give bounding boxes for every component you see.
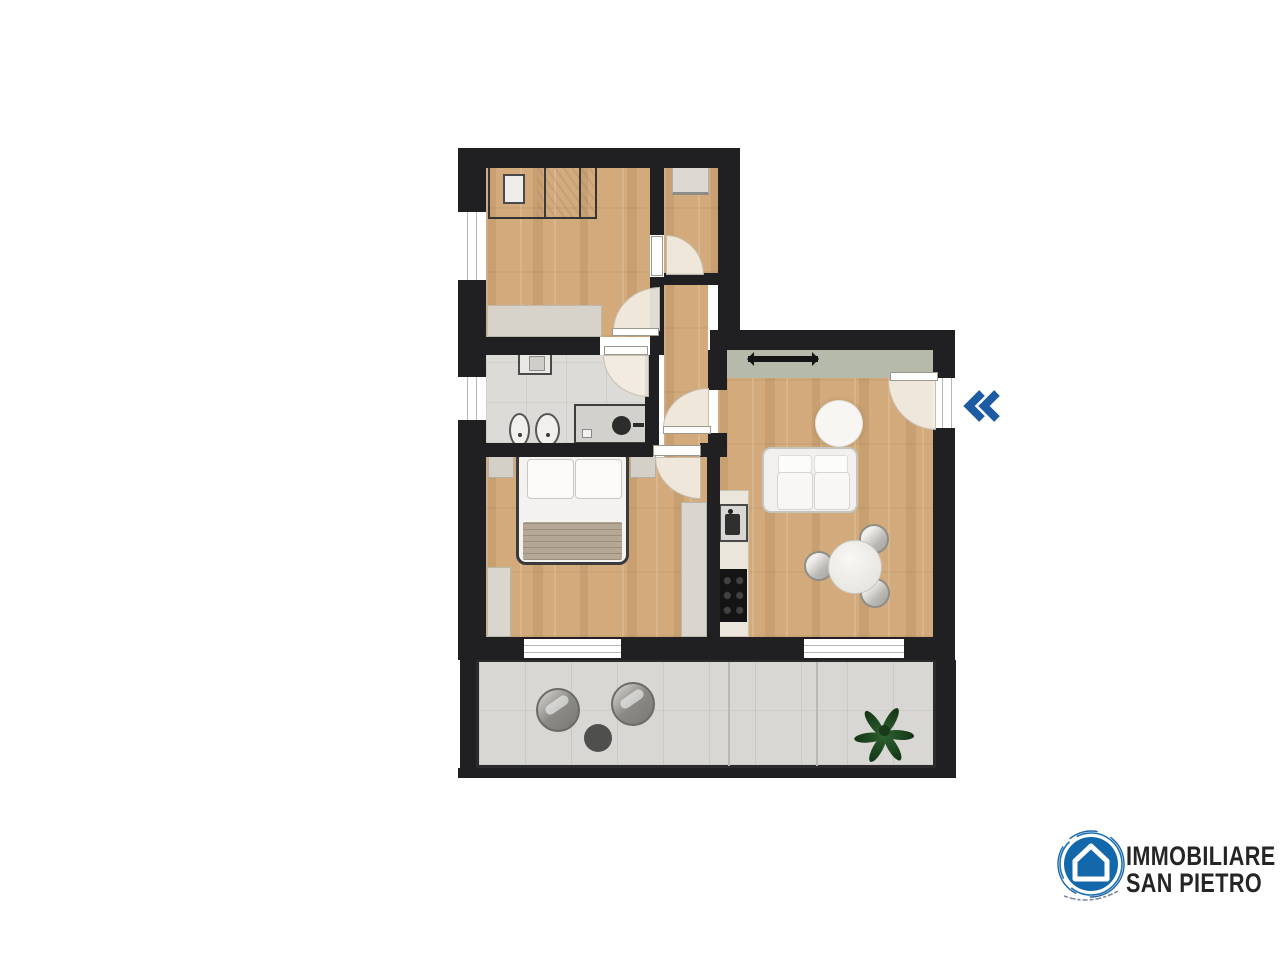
wall-living-left: [708, 350, 727, 390]
toilet-drain: [546, 433, 550, 437]
bed-blanket: [523, 522, 622, 560]
door-leaf: [604, 346, 648, 355]
agency-logo: IMMOBILIARE SAN PIETRO: [1056, 830, 1276, 908]
sink-tap: [728, 509, 733, 514]
sofa-pillow: [814, 455, 848, 473]
wall-right: [933, 428, 955, 660]
wall-right-upper: [718, 148, 740, 350]
wall-top: [458, 148, 740, 168]
sofa-cushion: [814, 472, 850, 510]
door-leaf: [663, 426, 711, 434]
terrace-seam: [816, 662, 818, 766]
sofa-pillow: [778, 455, 812, 473]
window-bathroom: [458, 377, 486, 420]
bidet-drain: [518, 433, 522, 437]
rail-end-icon: [740, 352, 754, 366]
bed-pillow: [575, 459, 622, 499]
sofa-cushion: [777, 472, 813, 510]
bedroom-2-dresser: [487, 567, 511, 637]
terrace-side-table: [584, 724, 612, 752]
wall-left: [458, 280, 486, 377]
wall-living-top: [710, 330, 955, 350]
toilet: [535, 413, 560, 447]
wall-bathroom-top: [486, 337, 600, 355]
double-left-chevron-icon: [962, 389, 1004, 423]
door-leaf: [651, 236, 663, 276]
window-bedroom-2: [524, 639, 621, 658]
shower-drain: [582, 429, 592, 438]
chair-highlight: [618, 687, 645, 710]
wall-right: [933, 330, 955, 378]
entry-door-opening: [933, 378, 955, 428]
door-leaf: [653, 445, 701, 456]
chair-highlight: [543, 693, 570, 716]
door-leaf: [612, 328, 659, 336]
logo-house-badge: [1056, 830, 1128, 908]
window-living: [804, 639, 904, 658]
shower-handle: [633, 423, 644, 427]
kitchen-sink: [719, 504, 748, 542]
rail-end-icon: [812, 352, 826, 366]
brand-name-line-2: SAN PIETRO: [1126, 870, 1262, 896]
prev-arrow-control[interactable]: [962, 389, 1004, 423]
window-bedroom-1: [458, 212, 486, 280]
bed-pillow: [503, 174, 525, 204]
floor-plan-page: IMMOBILIARE SAN PIETRO: [0, 0, 1280, 960]
bed-pillow: [527, 459, 574, 499]
lounge-chair: [536, 688, 580, 732]
wall-bedroom2-top: [458, 443, 653, 457]
bidet: [509, 413, 530, 447]
door-leaf: [890, 372, 938, 381]
wall-left: [458, 148, 486, 212]
wall-terrace-bottom: [458, 768, 956, 778]
wall-living-left: [708, 433, 727, 457]
sink-bowl: [725, 514, 740, 535]
round-rug: [815, 400, 863, 447]
potted-plant: [858, 706, 910, 758]
shower-head: [612, 416, 631, 435]
wall-kitchen: [707, 457, 720, 637]
washbasin-bowl: [529, 356, 545, 371]
cooktop: [720, 569, 747, 622]
sofa: [762, 447, 858, 513]
lounge-chair: [611, 682, 655, 726]
plant-center: [879, 725, 890, 736]
clothes-rail: [748, 356, 818, 362]
dining-table: [828, 540, 882, 594]
bedroom-2-wardrobe: [681, 502, 707, 637]
wall-interior: [650, 168, 664, 235]
terrace-seam: [728, 662, 730, 766]
double-bed: [516, 449, 629, 565]
bedroom-1-sideboard: [487, 305, 602, 337]
brand-name-line-1: IMMOBILIARE: [1126, 843, 1276, 869]
wall-right-terrace: [936, 660, 956, 777]
shower: [574, 404, 647, 444]
